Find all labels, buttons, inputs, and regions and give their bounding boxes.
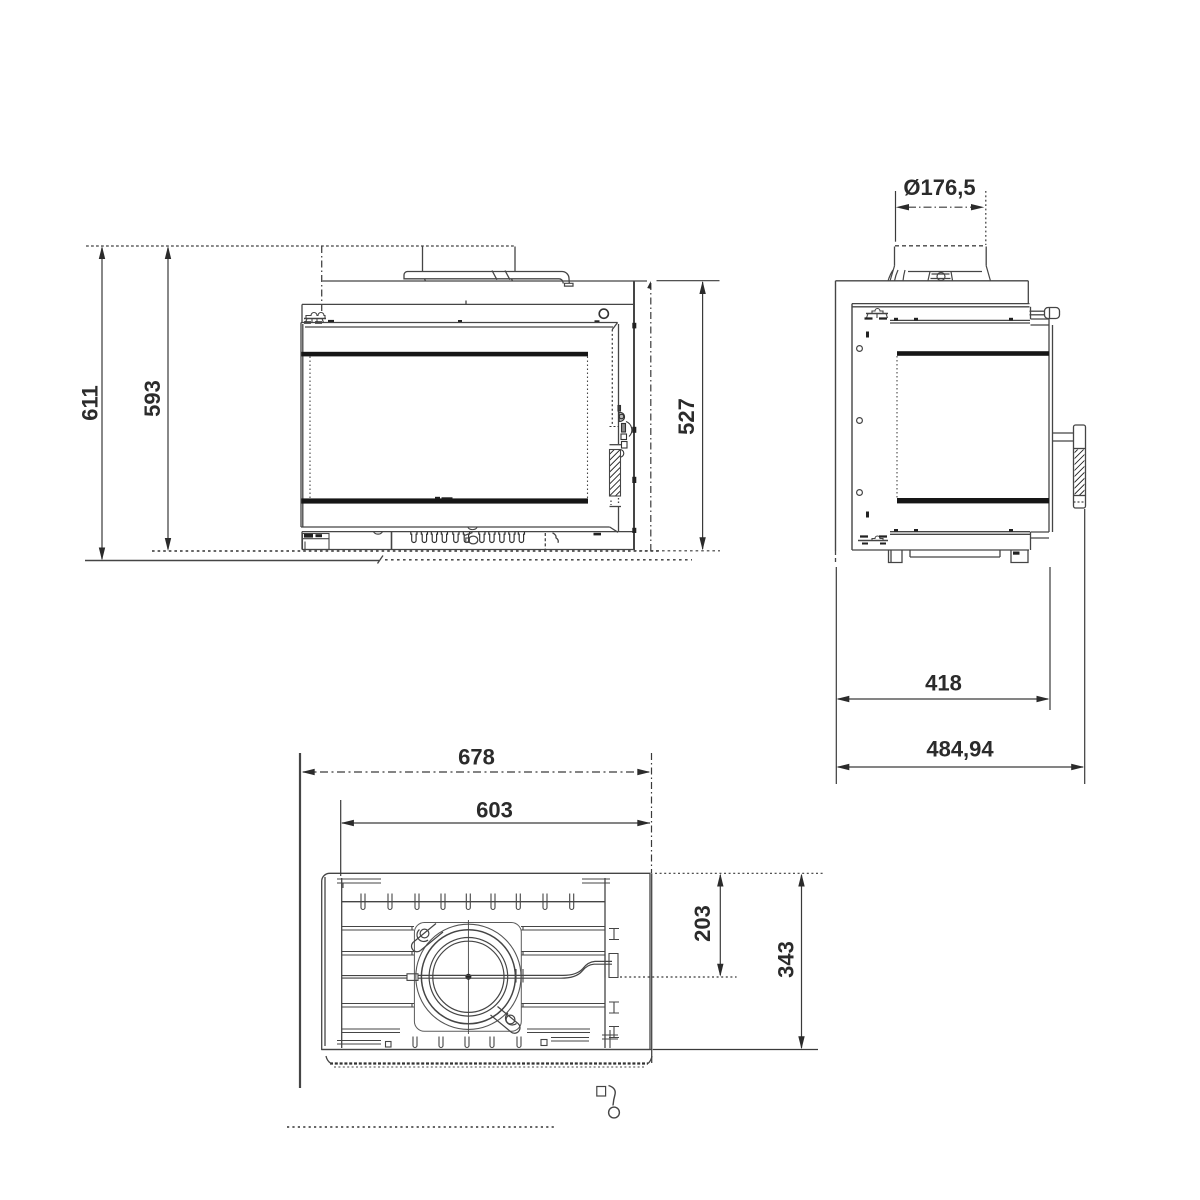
svg-text:343: 343: [774, 941, 799, 978]
svg-text:678: 678: [458, 745, 495, 770]
svg-text:593: 593: [140, 380, 165, 417]
svg-text:527: 527: [674, 398, 699, 435]
svg-text:484,94: 484,94: [926, 737, 994, 762]
svg-text:203: 203: [690, 905, 715, 942]
svg-text:Ø176,5: Ø176,5: [903, 175, 975, 200]
svg-text:611: 611: [78, 385, 103, 421]
svg-text:603: 603: [476, 798, 513, 823]
svg-text:418: 418: [925, 671, 962, 696]
